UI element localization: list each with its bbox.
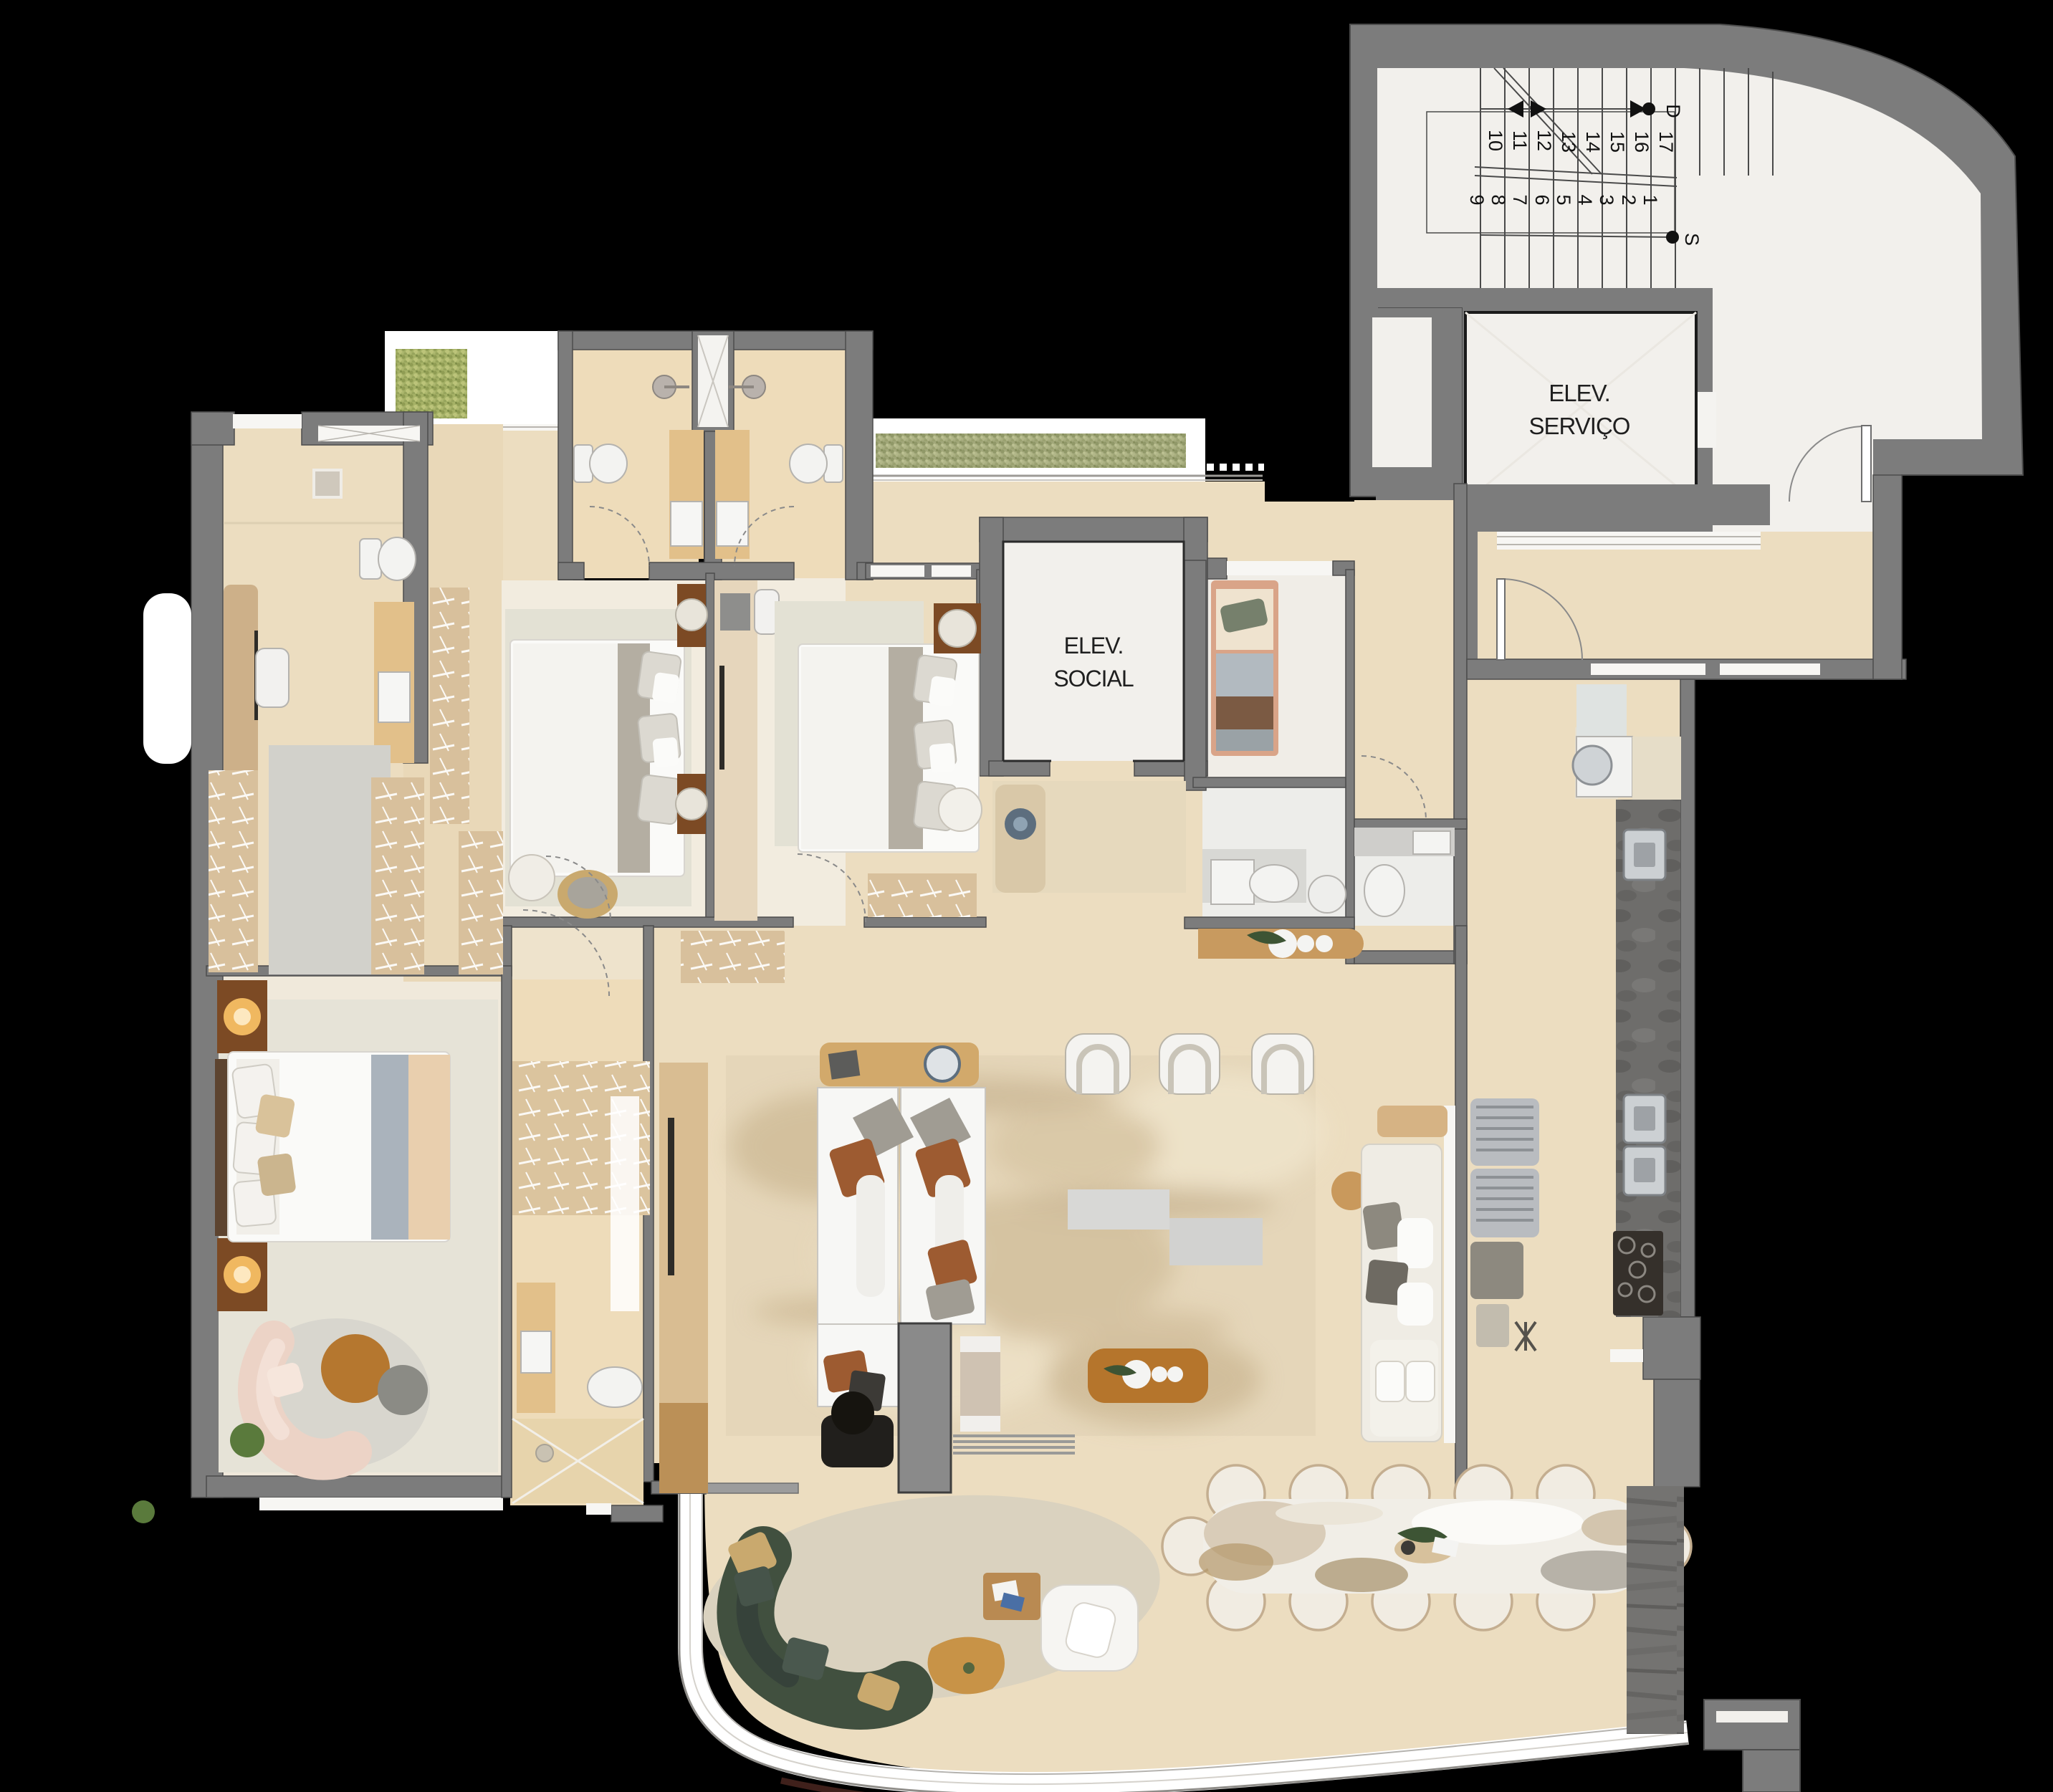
svg-text:17: 17 — [1655, 131, 1677, 153]
svg-text:ELEV.: ELEV. — [1064, 633, 1124, 658]
svg-text:10: 10 — [1485, 130, 1506, 151]
svg-text:SERVIÇO: SERVIÇO — [1529, 413, 1630, 439]
svg-text:4: 4 — [1574, 194, 1596, 205]
svg-text:1: 1 — [1640, 194, 1661, 205]
svg-text:5: 5 — [1553, 194, 1574, 205]
svg-text:SOCIAL: SOCIAL — [1053, 666, 1134, 691]
svg-text:D: D — [1662, 104, 1684, 118]
svg-text:11: 11 — [1509, 130, 1531, 150]
svg-text:2: 2 — [1618, 194, 1640, 205]
svg-text:8: 8 — [1488, 194, 1509, 205]
svg-text:6: 6 — [1531, 194, 1553, 205]
svg-text:3: 3 — [1596, 194, 1617, 205]
svg-text:S: S — [1681, 233, 1703, 246]
svg-text:7: 7 — [1509, 194, 1531, 205]
svg-text:13: 13 — [1558, 131, 1579, 153]
svg-text:14: 14 — [1582, 131, 1604, 153]
svg-text:16: 16 — [1631, 131, 1652, 153]
svg-text:15: 15 — [1607, 131, 1628, 153]
svg-text:ELEV.: ELEV. — [1549, 380, 1610, 406]
svg-text:12: 12 — [1533, 130, 1555, 151]
svg-text:9: 9 — [1466, 194, 1488, 205]
